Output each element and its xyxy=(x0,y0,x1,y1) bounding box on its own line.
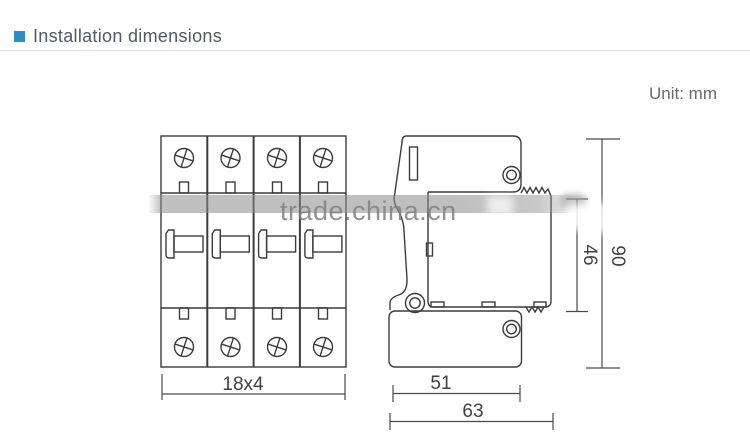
front-view-drawing: 18x4 xyxy=(161,136,346,400)
dimension-18x4: 18x4 xyxy=(162,374,345,400)
module-1 xyxy=(166,146,203,359)
dim-18x4-label: 18x4 xyxy=(222,374,264,395)
watermark-text: trade.china.cn xyxy=(280,198,457,225)
product-dimensions-section: Installation dimensions Unit: mm xyxy=(0,0,750,445)
watermark-smudge-icon xyxy=(566,204,592,230)
dimension-51: 51 xyxy=(393,373,520,402)
dim-51-label: 51 xyxy=(430,373,451,394)
module-4 xyxy=(305,146,342,359)
side-view-drawing: 51 63 46 90 xyxy=(389,136,628,430)
dim-46-label: 46 xyxy=(579,244,600,265)
dim-63-label: 63 xyxy=(462,401,483,422)
watermark-smudge-icon xyxy=(595,203,618,233)
watermark-smudge-icon xyxy=(487,196,513,216)
module-3 xyxy=(259,146,296,359)
module-2 xyxy=(212,146,249,359)
dim-90-label: 90 xyxy=(607,245,628,266)
dimension-63: 63 xyxy=(390,401,553,430)
